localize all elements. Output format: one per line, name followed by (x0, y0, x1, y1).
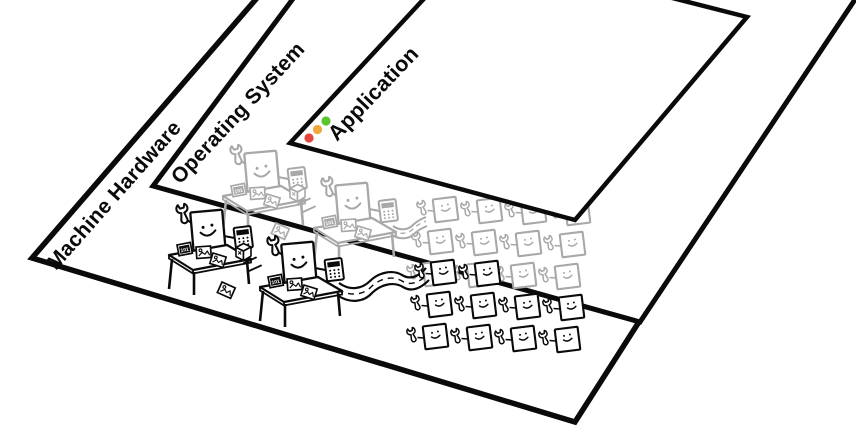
window-control-close-icon (304, 133, 313, 142)
illustration-canvas: 101 (0, 0, 856, 446)
layers-illustration: 101 (0, 0, 856, 446)
window-control-minimize-icon (313, 125, 322, 134)
